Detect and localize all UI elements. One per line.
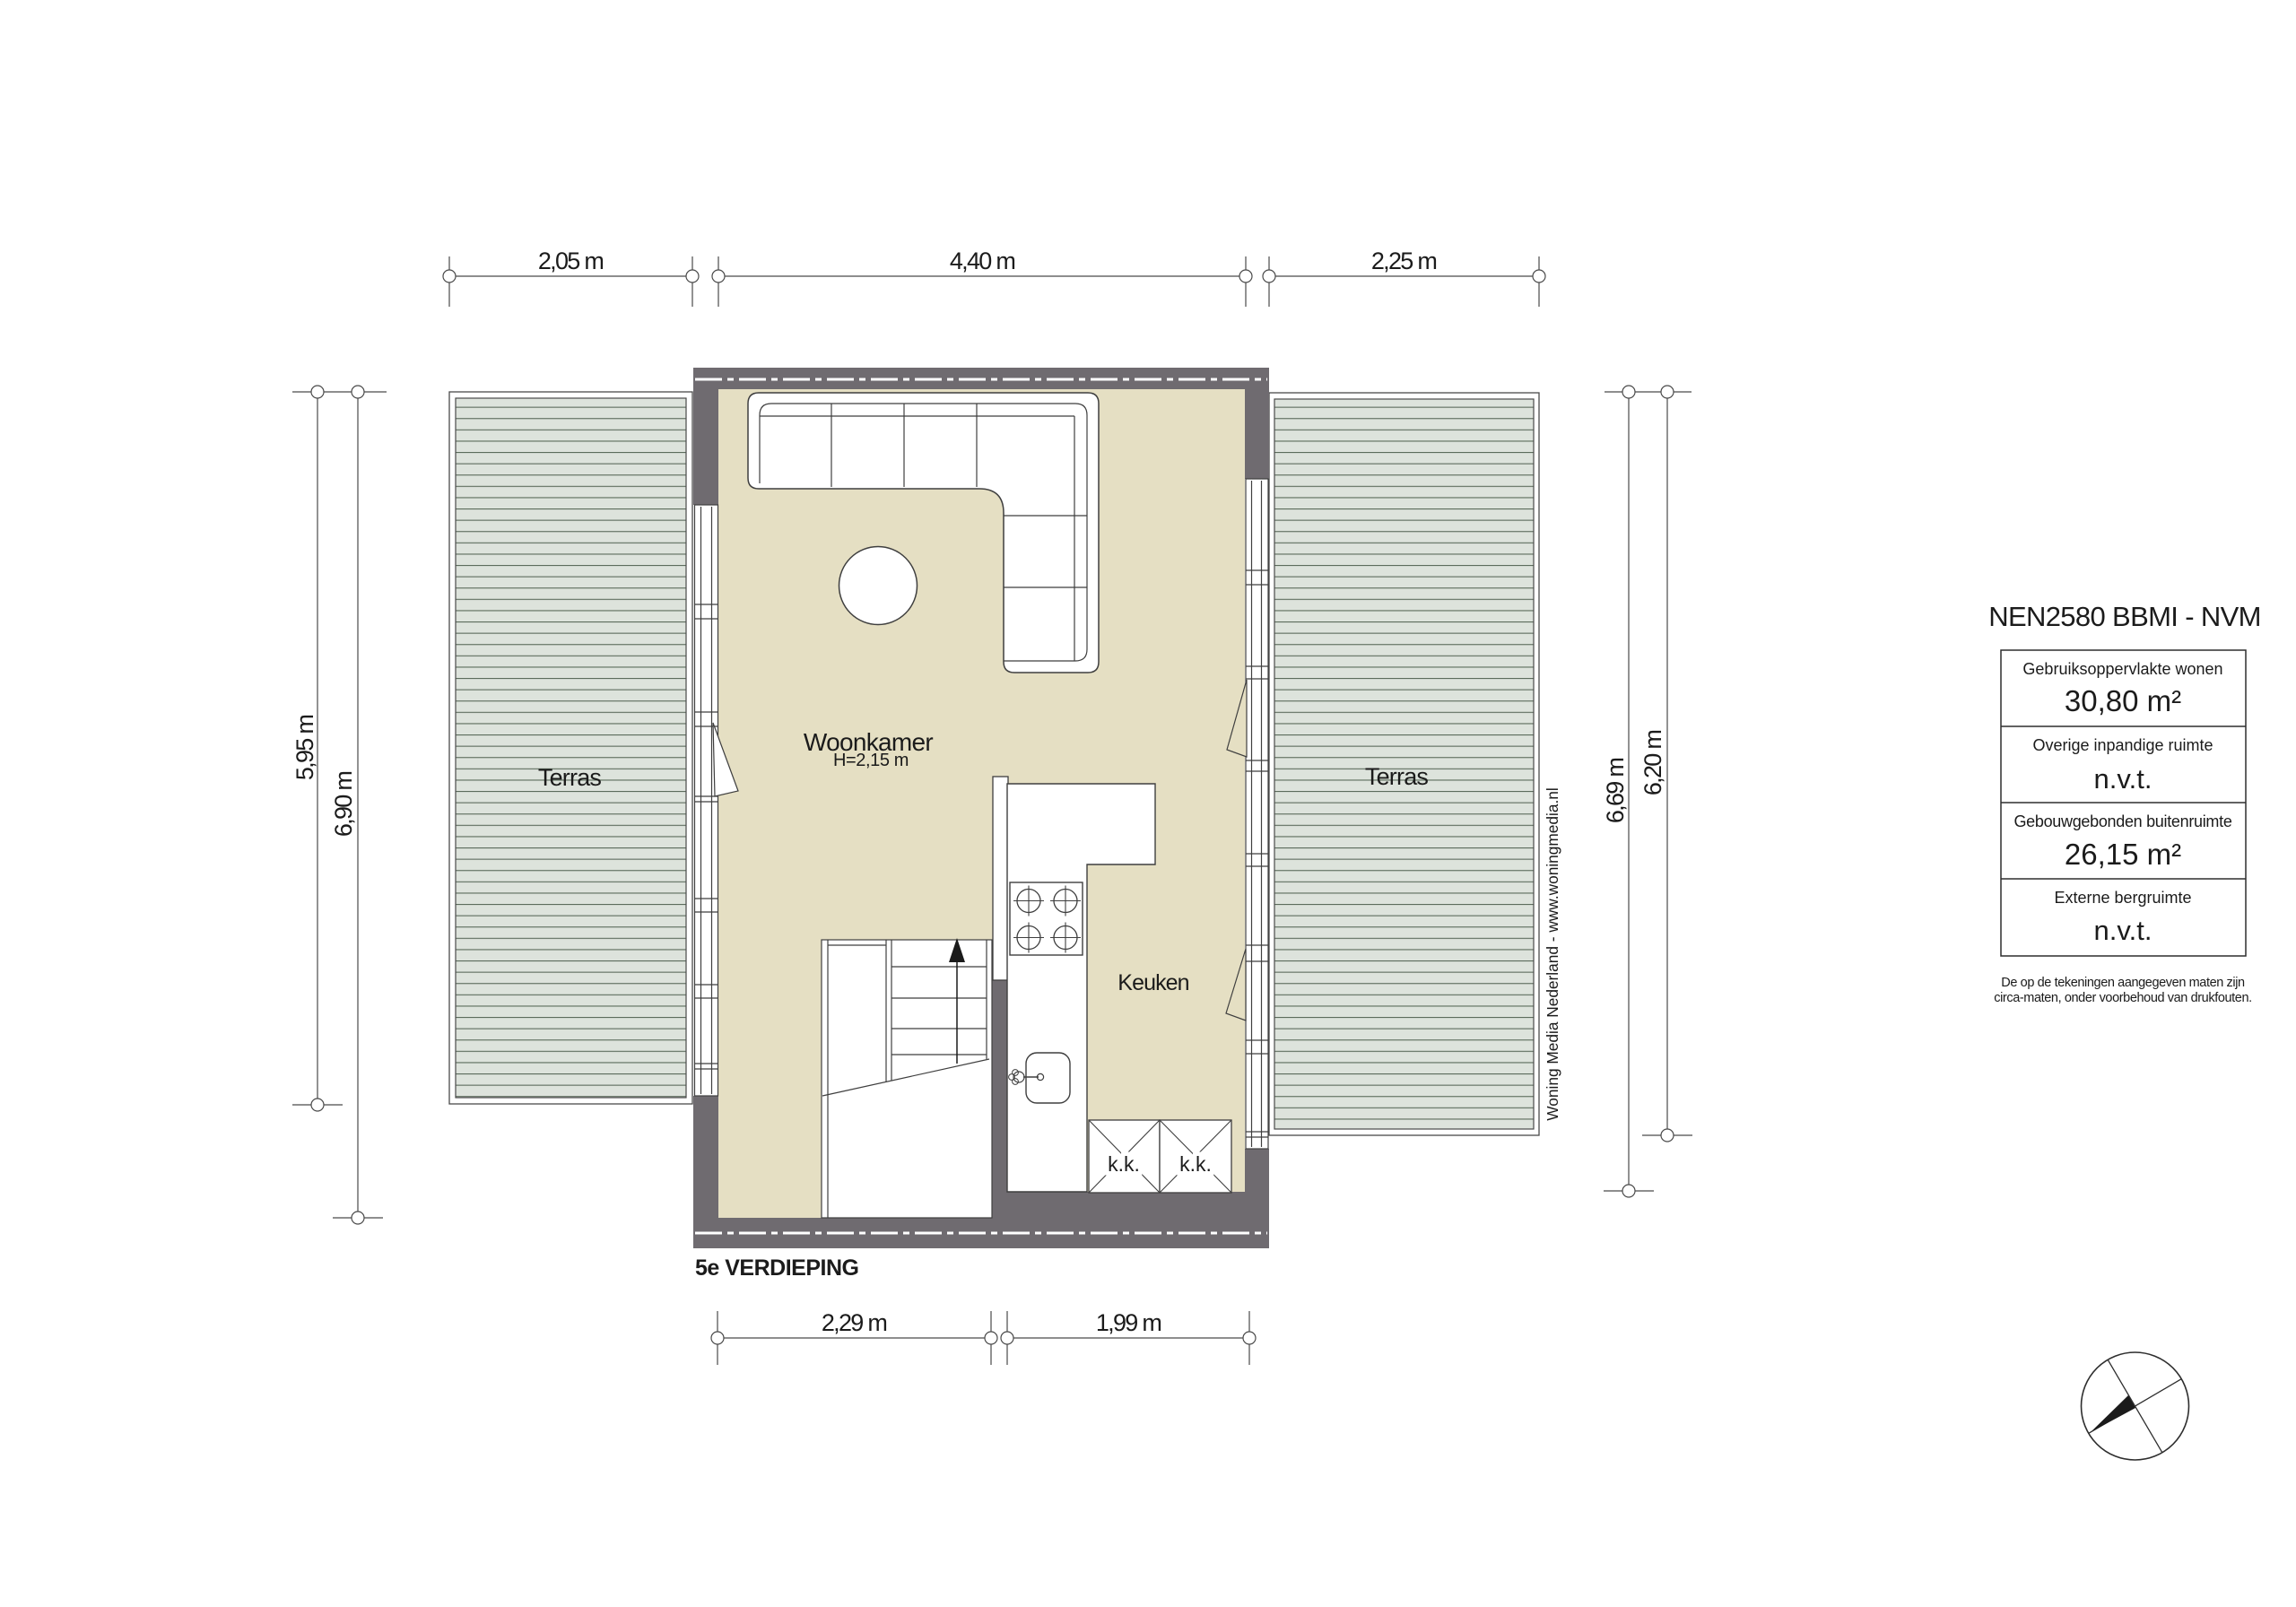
svg-text:k.k.: k.k. — [1108, 1152, 1140, 1176]
svg-text:26,15 m²: 26,15 m² — [2065, 838, 2181, 871]
svg-text:NEN2580 BBMI - NVM: NEN2580 BBMI - NVM — [1988, 601, 2261, 632]
svg-text:1,99 m: 1,99 m — [1096, 1309, 1161, 1336]
svg-text:2,05 m: 2,05 m — [538, 248, 604, 274]
svg-text:Gebruiksoppervlakte wonen: Gebruiksoppervlakte wonen — [2022, 660, 2222, 678]
svg-text:n.v.t.: n.v.t. — [2094, 763, 2152, 795]
svg-text:De op de tekeningen aangegeven: De op de tekeningen aangegeven maten zij… — [2001, 976, 2245, 990]
svg-text:Terras: Terras — [1365, 763, 1429, 790]
svg-text:6,69 m: 6,69 m — [1602, 759, 1629, 824]
svg-text:Keuken: Keuken — [1118, 970, 1188, 995]
svg-text:30,80 m²: 30,80 m² — [2065, 684, 2181, 717]
svg-text:5,95 m: 5,95 m — [291, 716, 318, 781]
svg-text:n.v.t.: n.v.t. — [2094, 915, 2152, 946]
svg-text:5e VERDIEPING: 5e VERDIEPING — [695, 1255, 858, 1281]
svg-text:Overige inpandige ruimte: Overige inpandige ruimte — [2032, 736, 2213, 754]
svg-text:Woning Media Nederland - www.w: Woning Media Nederland - www.woningmedia… — [1544, 787, 1561, 1120]
svg-text:6,20 m: 6,20 m — [1639, 731, 1666, 796]
svg-text:6,90 m: 6,90 m — [330, 772, 357, 838]
svg-text:Gebouwgebonden buitenruimte: Gebouwgebonden buitenruimte — [2013, 812, 2231, 830]
svg-text:k.k.: k.k. — [1179, 1152, 1212, 1176]
svg-text:2,29 m: 2,29 m — [822, 1309, 887, 1336]
svg-text:Terras: Terras — [538, 764, 602, 791]
svg-text:circa-maten, onder voorbehoud: circa-maten, onder voorbehoud van drukfo… — [1994, 991, 2252, 1005]
svg-text:4,40 m: 4,40 m — [950, 248, 1015, 274]
svg-text:H=2,15 m: H=2,15 m — [833, 751, 909, 770]
svg-text:2,25 m: 2,25 m — [1371, 248, 1437, 274]
svg-text:Externe bergruimte: Externe bergruimte — [2054, 889, 2191, 907]
